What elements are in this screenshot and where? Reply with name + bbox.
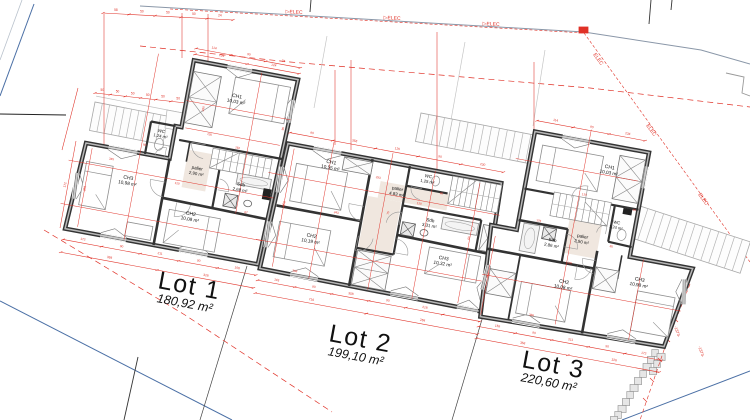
svg-text:▷ELEC: ▷ELEC (482, 21, 500, 28)
svg-text:50: 50 (161, 95, 165, 99)
svg-text:50: 50 (131, 91, 135, 95)
svg-text:50: 50 (146, 93, 150, 97)
svg-text:▷ELEC: ▷ELEC (285, 9, 303, 16)
svg-text:50: 50 (192, 12, 196, 16)
svg-text:58: 58 (114, 8, 118, 12)
svg-text:50: 50 (101, 88, 105, 92)
svg-text:50: 50 (116, 90, 120, 94)
svg-text:50: 50 (140, 9, 144, 13)
svg-text:50: 50 (166, 11, 170, 15)
svg-text:50: 50 (176, 96, 180, 100)
svg-text:24: 24 (218, 14, 222, 18)
svg-text:▷ELEC: ▷ELEC (383, 15, 401, 22)
